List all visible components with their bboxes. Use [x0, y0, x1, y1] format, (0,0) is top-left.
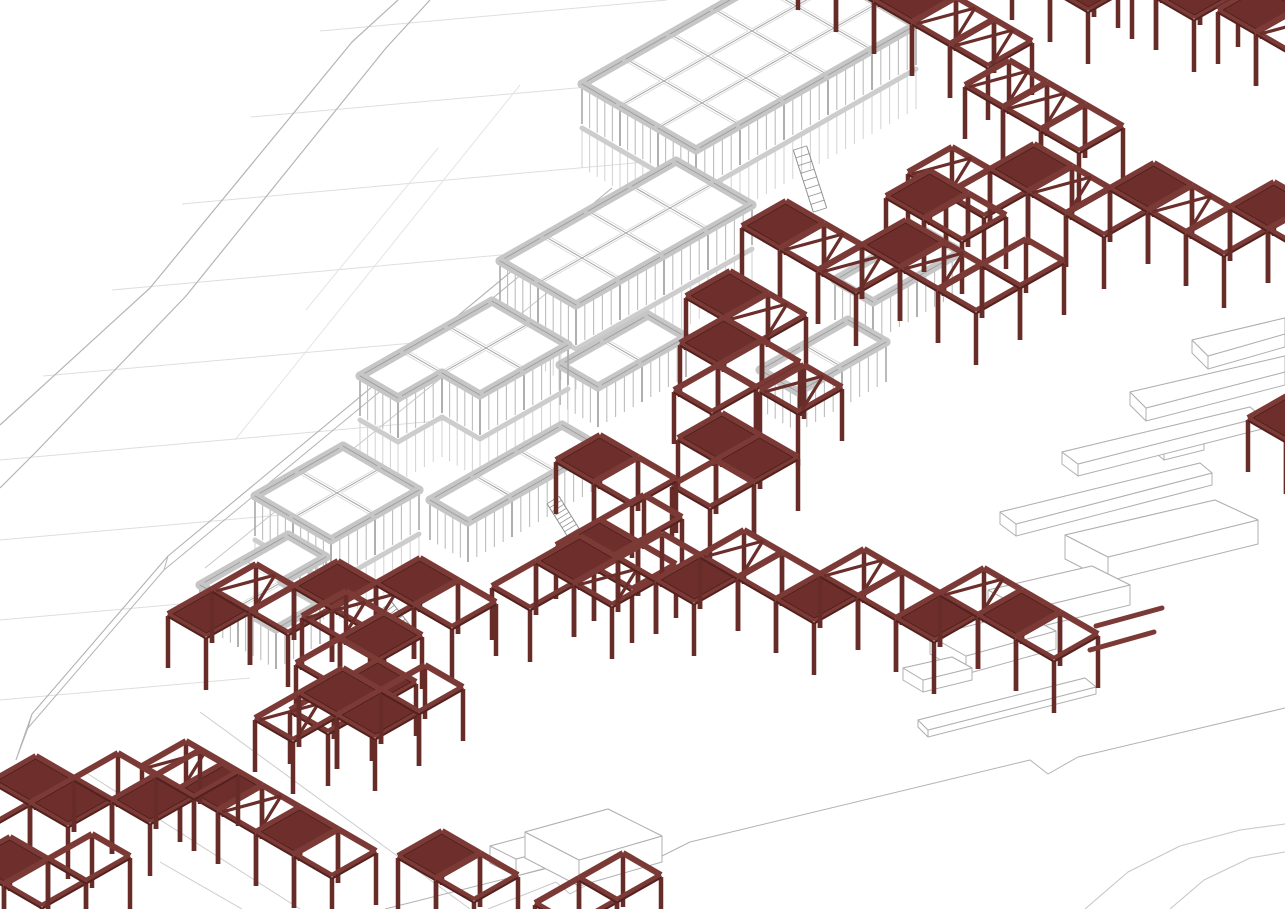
drawing-canvas — [0, 0, 1285, 909]
axonometric-view — [0, 0, 1285, 909]
